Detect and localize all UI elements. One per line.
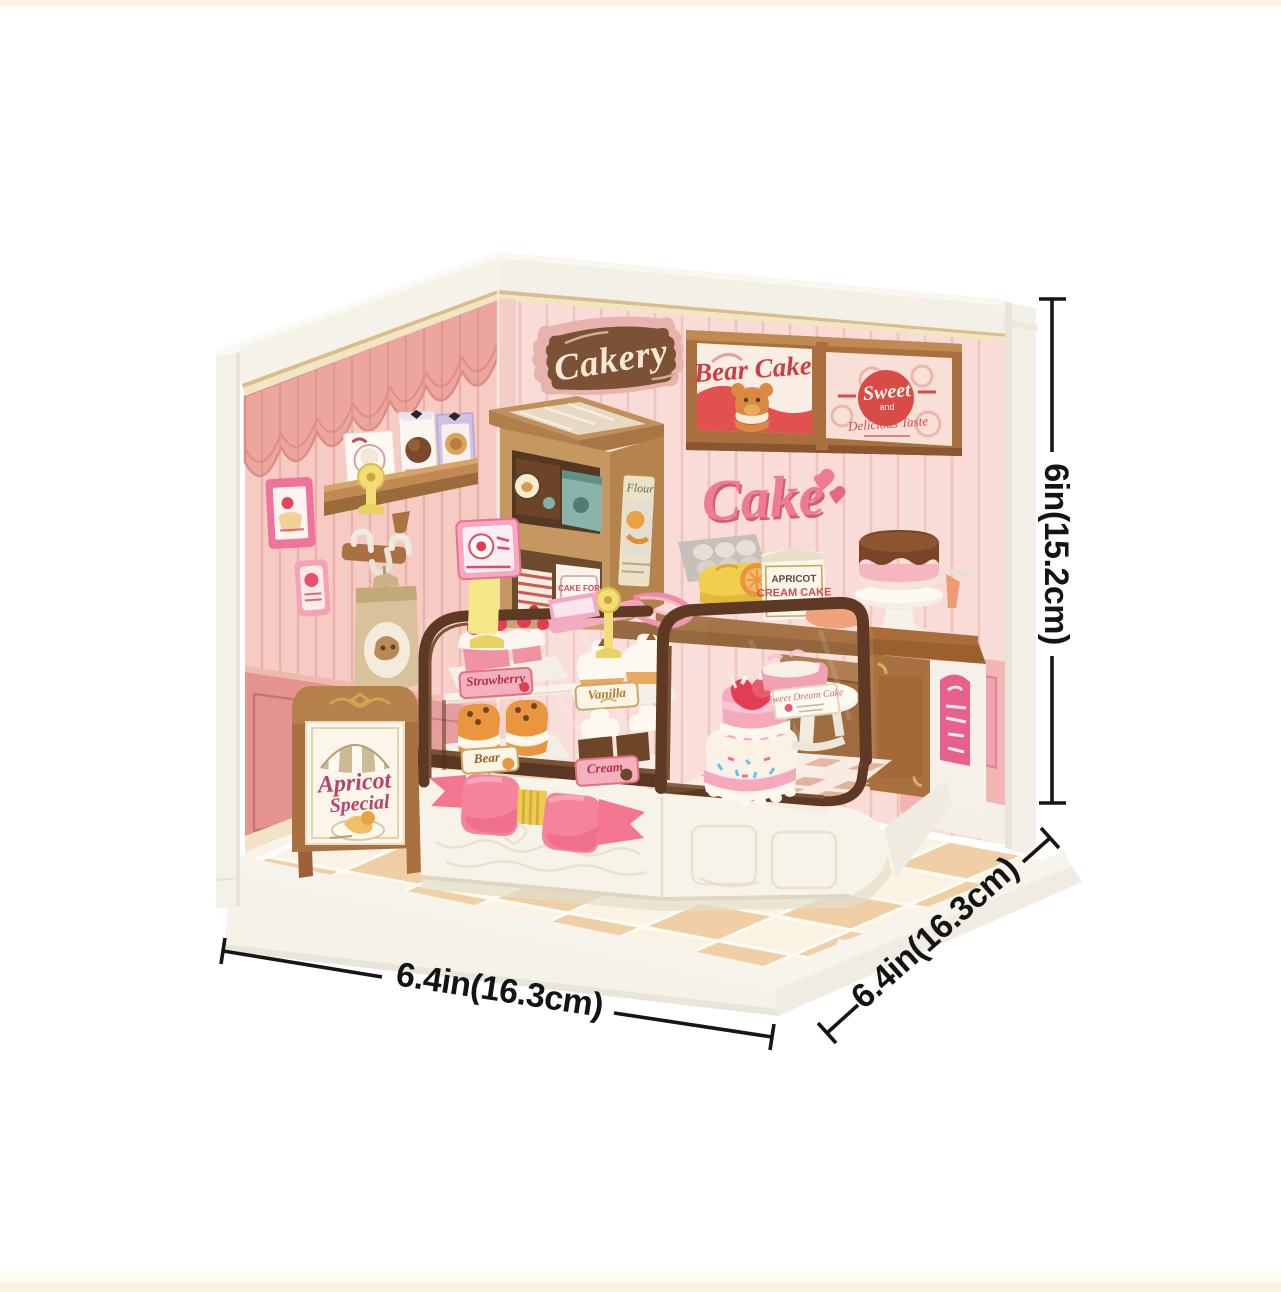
svg-text:Flour: Flour <box>625 480 654 495</box>
svg-text:Cream: Cream <box>586 759 623 776</box>
svg-text:Bear: Bear <box>472 749 501 766</box>
svg-text:Special: Special <box>329 791 391 817</box>
svg-text:and: and <box>879 402 894 412</box>
svg-text:CREAM CAKE: CREAM CAKE <box>757 586 832 599</box>
svg-text:Cake: Cake <box>700 462 826 533</box>
svg-text:APRICOT: APRICOT <box>771 574 816 586</box>
svg-text:6in(15.2cm): 6in(15.2cm) <box>1037 463 1075 645</box>
svg-text:CAKE FOR: CAKE FOR <box>558 584 600 593</box>
